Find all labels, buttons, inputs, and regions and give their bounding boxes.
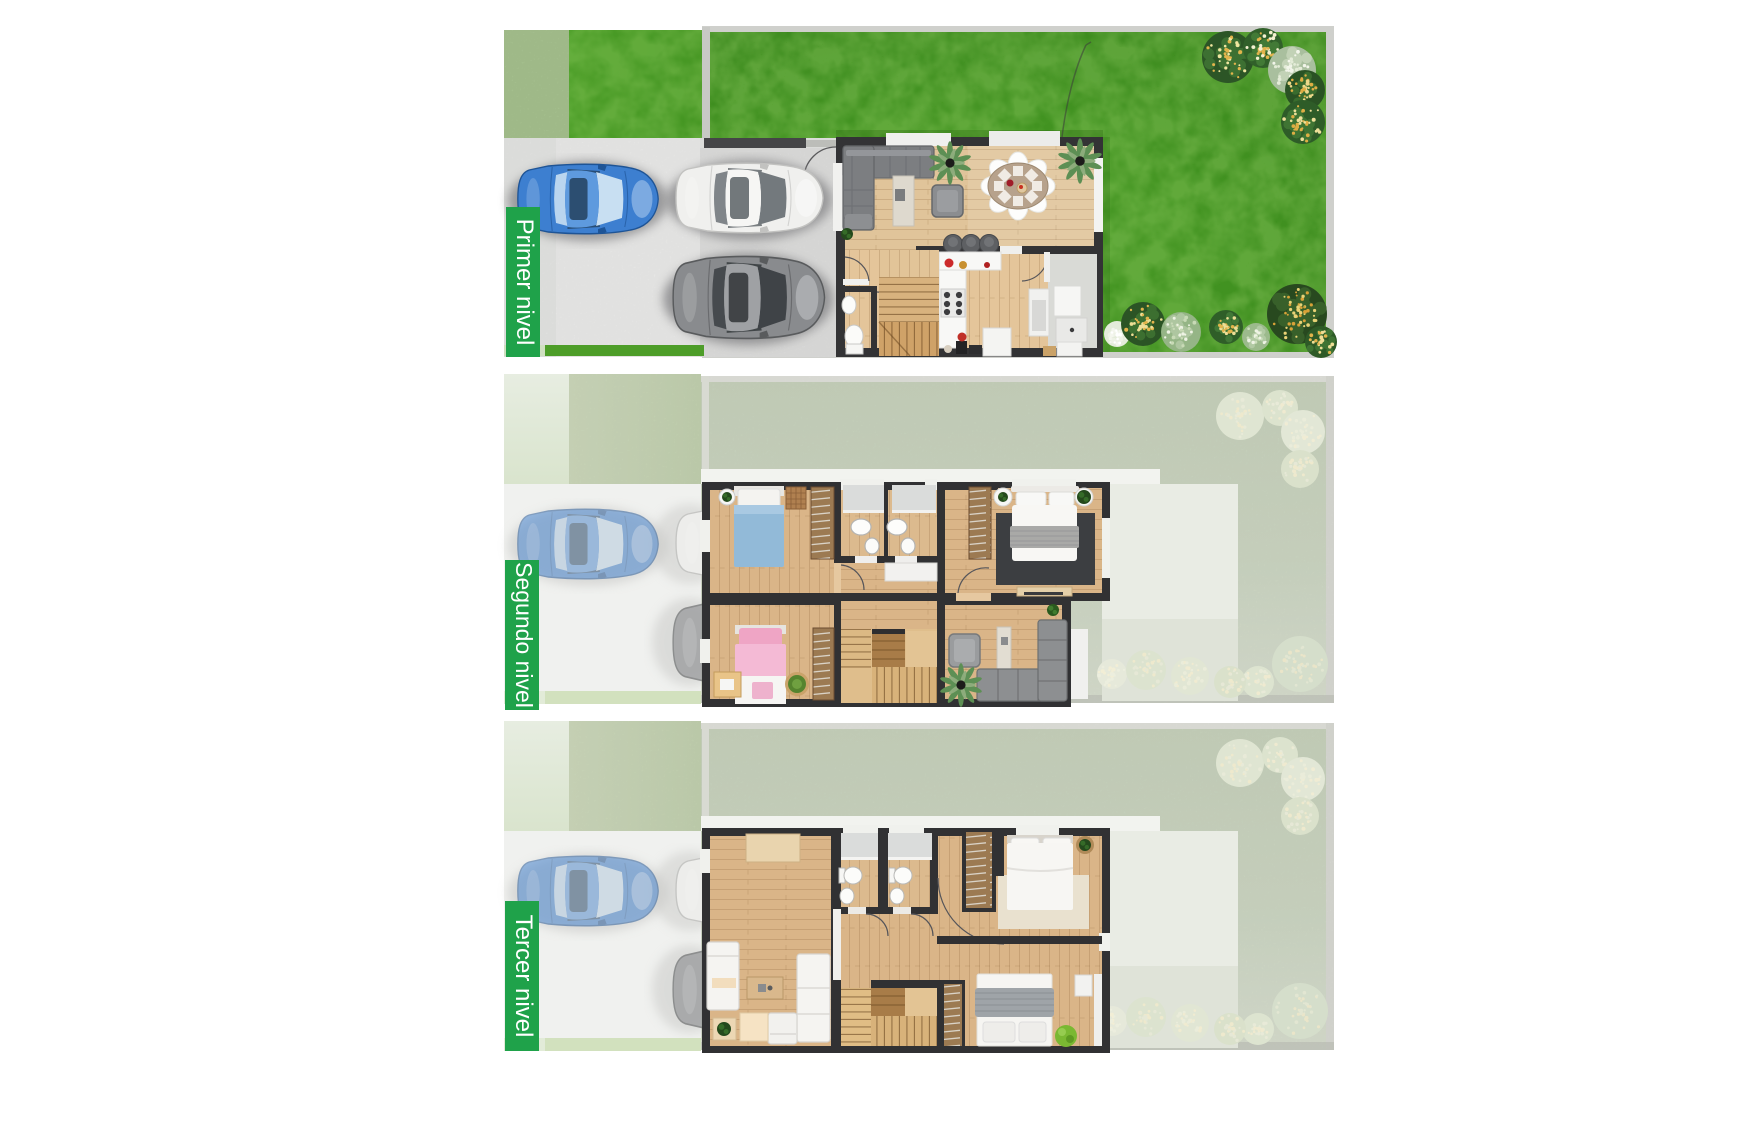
svg-text:Tercer nivel: Tercer nivel: [510, 915, 537, 1038]
svg-text:Primer nivel: Primer nivel: [511, 219, 538, 346]
svg-text:Segundo nivel: Segundo nivel: [511, 562, 537, 708]
